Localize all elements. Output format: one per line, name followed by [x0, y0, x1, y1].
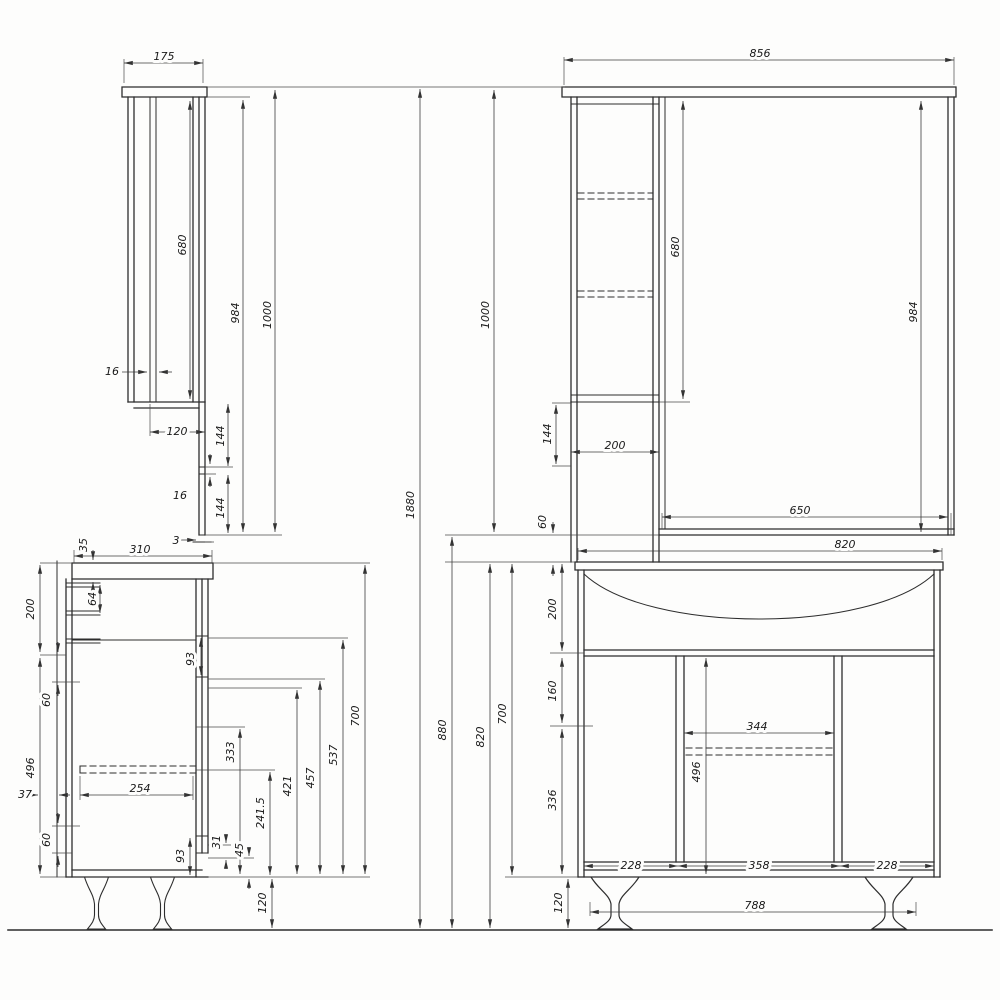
dim-mirror-side-144-upper: 144 [214, 426, 227, 447]
dim-vanity-side-254: 254 [130, 782, 151, 795]
technical-drawing: 1880 175 680 984 1000 16 120 144 16 144 … [0, 0, 1000, 1000]
dim-mirror-front-144: 144 [541, 424, 554, 445]
dim-vanity-side-leg-120: 120 [256, 893, 269, 914]
dim-vanity-front-336: 336 [546, 790, 559, 811]
dim-mirror-side-1000: 1000 [261, 301, 274, 329]
dim-vanity-front-leg-120: 120 [552, 893, 565, 914]
dim-vanity-side-93-lower: 93 [174, 849, 187, 863]
dim-vanity-side-45: 45 [233, 843, 246, 857]
dim-vanity-side-37: 37 [18, 788, 32, 801]
dimension-labels: 1880 175 680 984 1000 16 120 144 16 144 … [18, 47, 920, 914]
extension-lines [40, 57, 954, 916]
dim-vanity-side-60-upper: 60 [40, 693, 53, 707]
dim-mirror-front-680: 680 [669, 237, 682, 258]
dim-mirror-side-984: 984 [229, 303, 242, 324]
dim-mirror-side-680: 680 [176, 235, 189, 256]
dim-vanity-side-333: 333 [224, 742, 237, 763]
dim-mirror-side-16-rail: 16 [173, 489, 187, 502]
dim-vanity-front-788: 788 [745, 899, 766, 912]
dim-vanity-side-93-upper: 93 [184, 652, 197, 666]
dim-vanity-side-700: 700 [349, 706, 362, 727]
dim-vanity-front-344: 344 [747, 720, 768, 733]
dim-vanity-side-64: 64 [86, 592, 99, 606]
dim-vanity-side-421: 421 [281, 776, 294, 797]
dim-vanity-front-820: 820 [474, 727, 487, 748]
dim-vanity-front-880: 880 [436, 720, 449, 741]
dim-vanity-side-310: 310 [130, 543, 151, 556]
dim-vanity-side-31: 31 [210, 835, 223, 849]
dim-vanity-front-228-left: 228 [621, 859, 642, 872]
dim-mirror-side-144-lower: 144 [214, 498, 227, 519]
dim-mirror-front-200: 200 [605, 439, 626, 452]
mirror-front-view-linework [562, 87, 956, 562]
dim-mirror-side-16-wall: 16 [105, 365, 119, 378]
dim-vanity-side-496: 496 [24, 758, 37, 779]
vanity-side-view-linework [57, 561, 213, 931]
dim-vanity-side-200: 200 [24, 599, 37, 620]
dim-vanity-side-60-lower: 60 [40, 833, 53, 847]
dim-vanity-front-496: 496 [690, 762, 703, 783]
mirror-side-view-linework [122, 87, 211, 542]
vanity-front-view-linework [575, 562, 943, 932]
dim-vanity-front-700: 700 [496, 704, 509, 725]
dim-vanity-front-160: 160 [546, 681, 559, 702]
dim-vanity-side-35: 35 [77, 538, 90, 552]
dim-mirror-front-1000: 1000 [479, 301, 492, 329]
dimension-lines [28, 60, 954, 928]
dim-mirror-front-856: 856 [750, 47, 771, 60]
dim-vanity-front-200: 200 [546, 599, 559, 620]
dim-mirror-side-3: 3 [173, 534, 180, 547]
dim-vanity-front-228-right: 228 [877, 859, 898, 872]
dim-overall-1880: 1880 [404, 491, 417, 519]
drawing-canvas: 1880 175 680 984 1000 16 120 144 16 144 … [0, 0, 1000, 1000]
dim-mirror-side-120: 120 [167, 425, 188, 438]
dim-vanity-side-457: 457 [304, 768, 317, 789]
dim-mirror-side-175: 175 [154, 50, 175, 63]
dim-mirror-front-984: 984 [907, 302, 920, 323]
dim-vanity-front-820-top: 820 [835, 538, 856, 551]
dim-vanity-side-537: 537 [327, 745, 340, 766]
dim-mirror-front-60: 60 [536, 515, 549, 529]
dim-mirror-front-650: 650 [790, 504, 811, 517]
dim-vanity-side-241-5: 241.5 [254, 797, 267, 829]
dim-vanity-front-358: 358 [749, 859, 770, 872]
